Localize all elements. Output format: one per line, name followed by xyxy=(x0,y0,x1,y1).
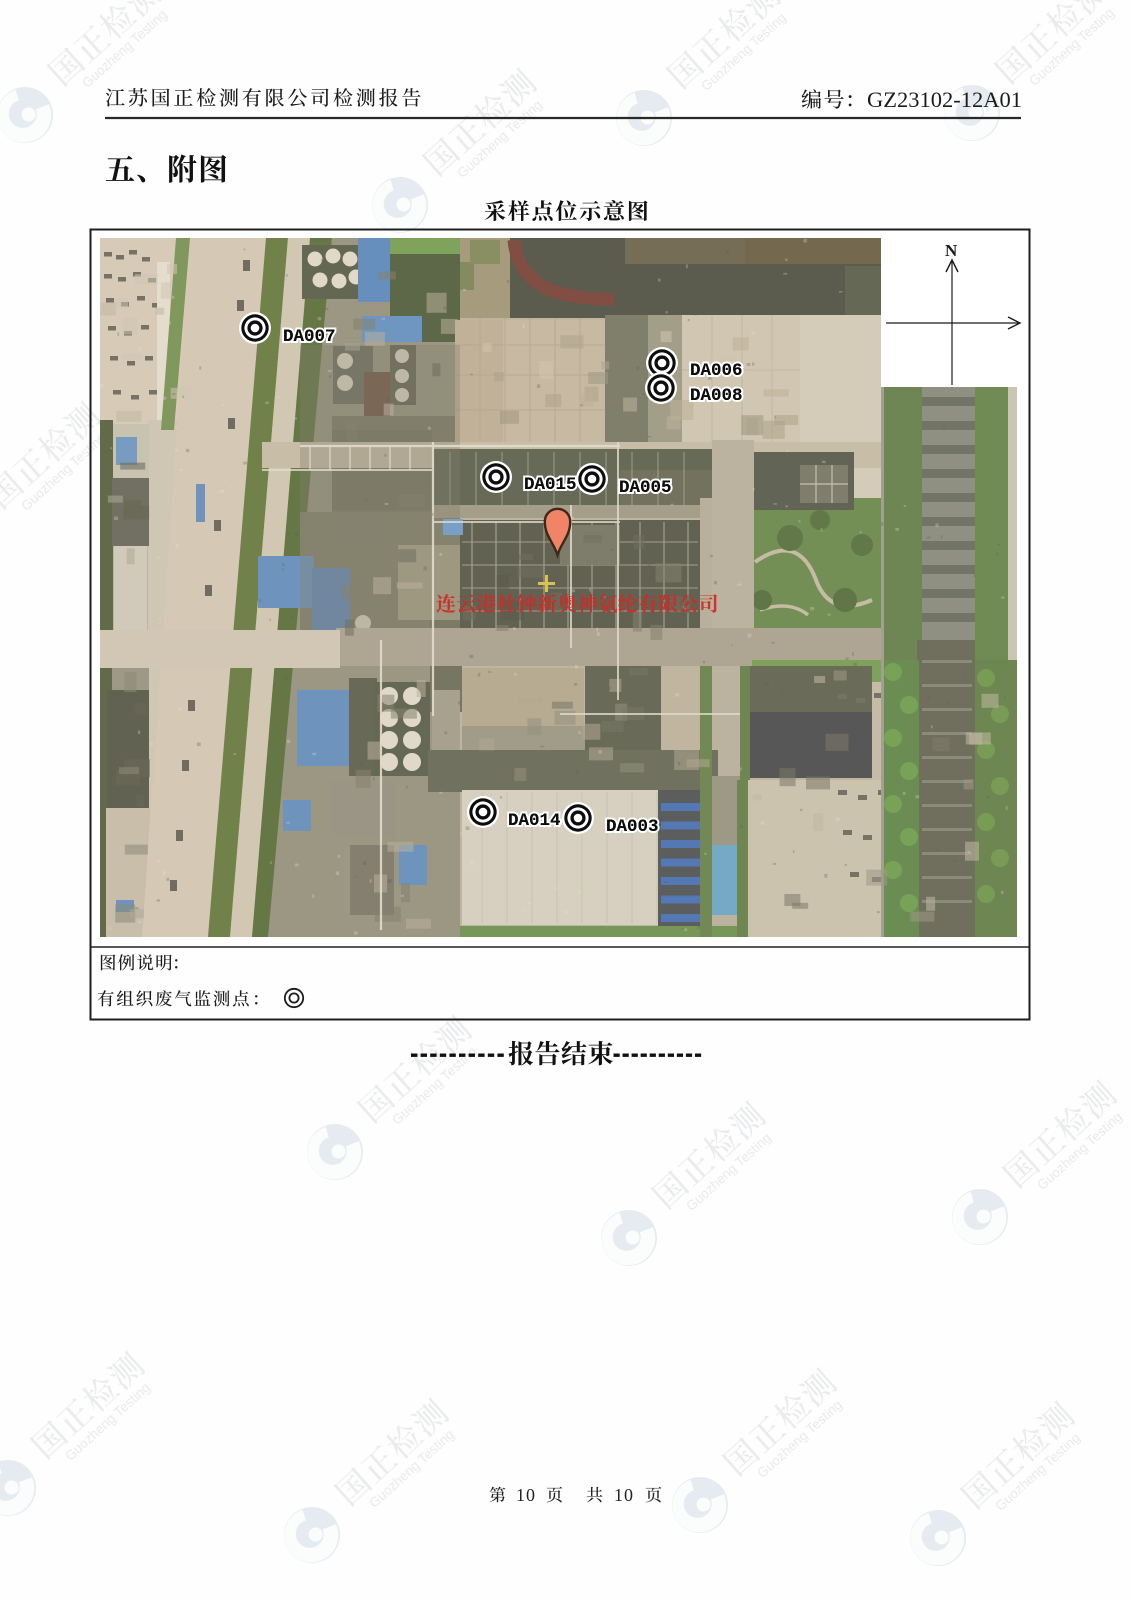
svg-text:Guozheng Testing: Guozheng Testing xyxy=(1026,5,1117,89)
svg-text:GZ23102-12A01: GZ23102-12A01 xyxy=(867,87,1022,112)
svg-text:DA005: DA005 xyxy=(619,478,672,498)
svg-text:Guozheng Testing: Guozheng Testing xyxy=(62,1380,153,1464)
svg-text:N: N xyxy=(945,241,958,260)
svg-text:Guozheng Testing: Guozheng Testing xyxy=(79,7,170,91)
svg-text:Guozheng Testing: Guozheng Testing xyxy=(454,97,545,181)
svg-text:Guozheng Testing: Guozheng Testing xyxy=(1034,1109,1125,1193)
svg-text:DA008: DA008 xyxy=(690,386,743,406)
svg-text:DA015: DA015 xyxy=(524,475,577,495)
svg-text:10: 10 xyxy=(516,1485,536,1505)
svg-text:Guozheng Testing: Guozheng Testing xyxy=(992,1430,1083,1514)
svg-text:DA007: DA007 xyxy=(283,327,336,347)
svg-text:10: 10 xyxy=(614,1485,634,1505)
svg-text:Guozheng Testing: Guozheng Testing xyxy=(366,1427,457,1511)
svg-text:Guozheng Testing: Guozheng Testing xyxy=(683,1130,774,1214)
svg-text:DA003: DA003 xyxy=(606,817,659,837)
svg-text:DA014: DA014 xyxy=(508,811,561,831)
svg-text:DA006: DA006 xyxy=(690,361,743,381)
svg-text:Guozheng Testing: Guozheng Testing xyxy=(754,1397,845,1481)
svg-text:Guozheng Testing: Guozheng Testing xyxy=(698,10,789,94)
svg-text:Guozheng Testing: Guozheng Testing xyxy=(18,430,109,514)
